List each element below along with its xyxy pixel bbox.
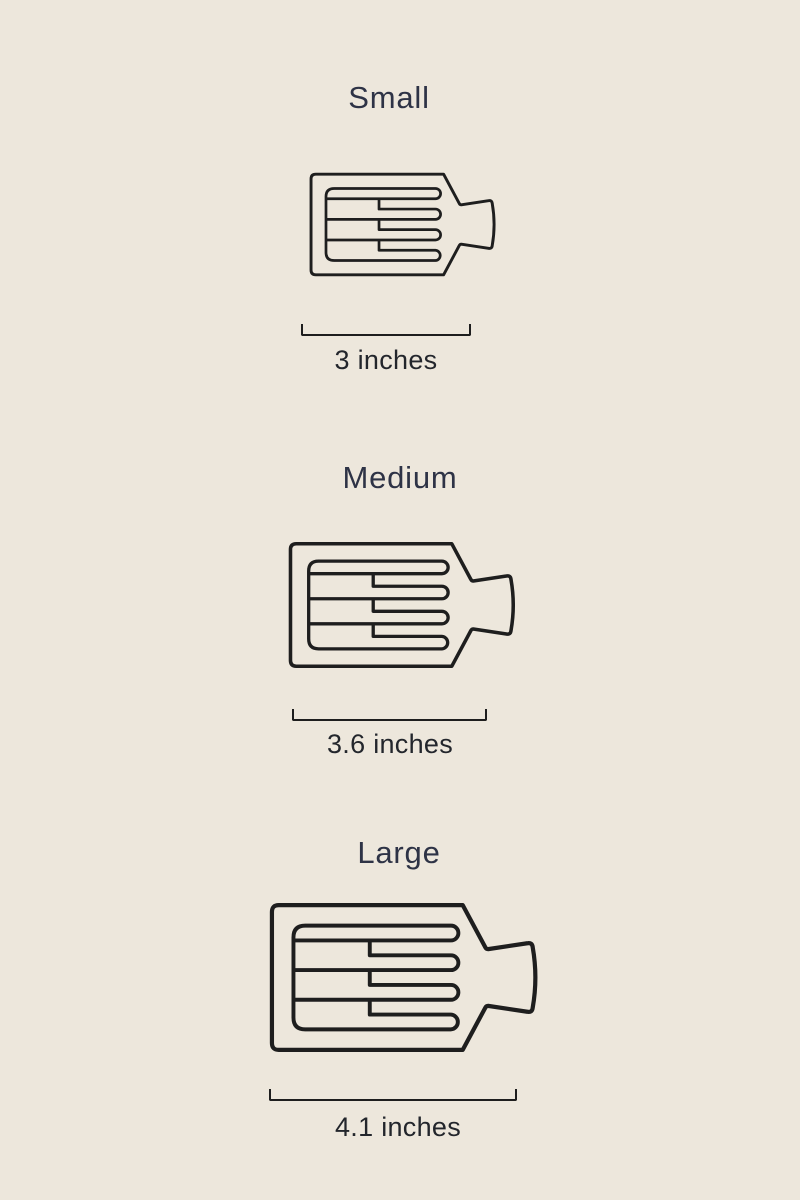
claw-clip-illustration-small <box>309 172 498 277</box>
measurement-bracket-medium <box>292 709 487 721</box>
measurement-bracket-small <box>301 324 471 336</box>
measurement-label-small: 3 inches <box>335 345 438 376</box>
claw-clip-illustration-large <box>269 902 541 1053</box>
measurement-label-large: 4.1 inches <box>335 1112 461 1143</box>
measurement-bracket-large <box>269 1089 517 1101</box>
measurement-label-medium: 3.6 inches <box>327 729 453 760</box>
size-title-small: Small <box>348 80 430 116</box>
size-title-medium: Medium <box>342 460 457 496</box>
size-title-large: Large <box>357 835 440 871</box>
claw-clip-illustration-medium <box>288 541 518 669</box>
